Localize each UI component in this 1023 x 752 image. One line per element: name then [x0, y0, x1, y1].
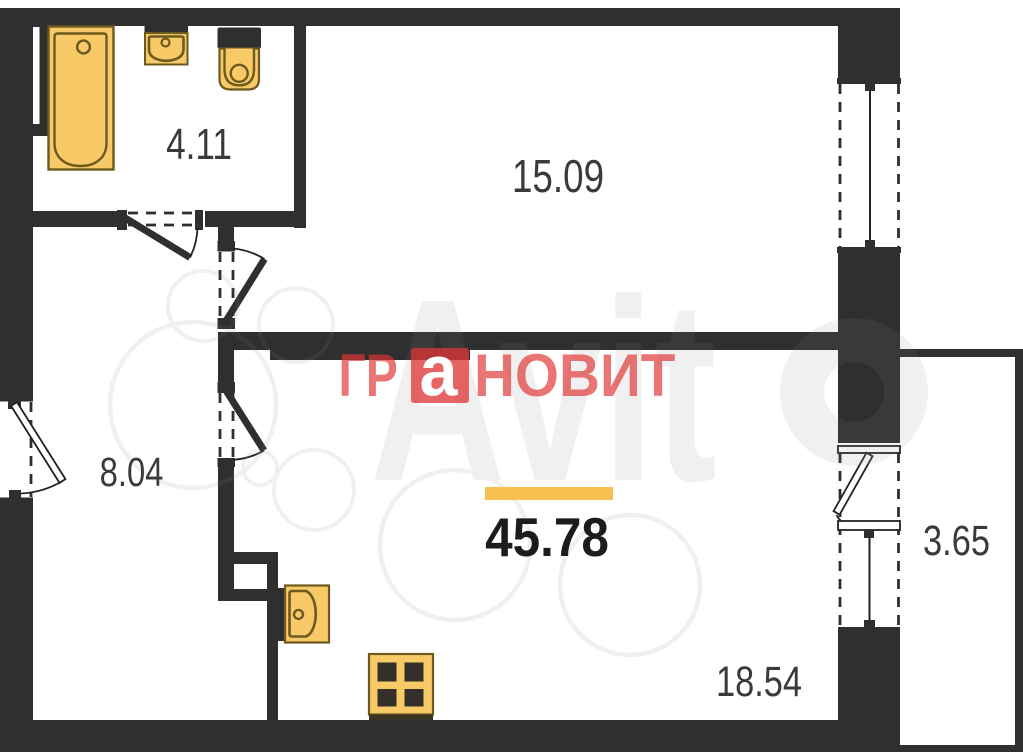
svg-text:ГР: ГР	[339, 342, 398, 409]
svg-text:8.04: 8.04	[100, 448, 164, 494]
svg-text:15.09: 15.09	[512, 150, 604, 202]
svg-text:4.11: 4.11	[166, 120, 232, 169]
svg-text:45.78: 45.78	[485, 508, 609, 569]
svg-text:а: а	[419, 330, 458, 411]
svg-text:НОВИТ: НОВИТ	[474, 343, 676, 410]
svg-text:3.65: 3.65	[923, 517, 990, 564]
svg-text:18.54: 18.54	[716, 658, 802, 705]
